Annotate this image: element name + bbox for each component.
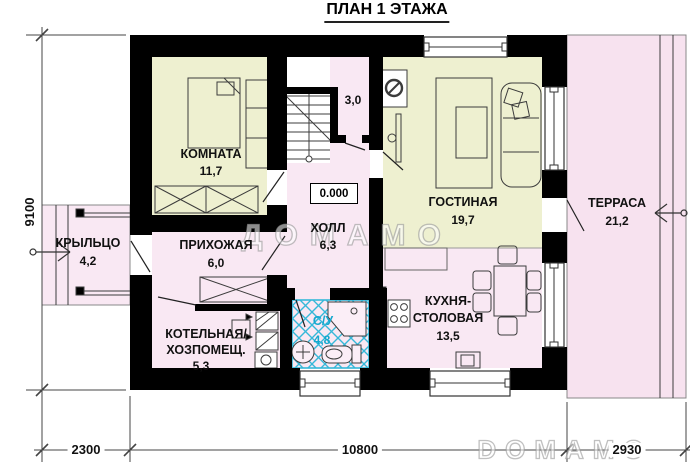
floor-plan-page: ДОМАМО DOMAMO ПЛАН 1 ЭТАЖА КОМНАТА 11,7 … xyxy=(0,0,690,470)
bedroom-area: 11,7 xyxy=(200,165,223,177)
stair-closet-area: 3,0 xyxy=(345,94,362,106)
terrace-area: 21,2 xyxy=(605,215,628,227)
boiler-room-label-2: ХОЗПОМЕЩ. xyxy=(166,344,245,357)
sofa xyxy=(501,83,541,187)
chimney-vent xyxy=(381,70,407,107)
stove xyxy=(388,300,410,327)
toilet xyxy=(322,345,361,363)
terrace-label: ТЕРРАСА xyxy=(588,197,646,210)
window-living-right xyxy=(545,87,564,170)
window-kitchen-right xyxy=(545,263,564,347)
entry-hall-area: 6,0 xyxy=(208,257,225,269)
door-main-entrance xyxy=(131,241,150,272)
window-kitchen-bottom xyxy=(430,371,510,396)
entry-hall-label: ПРИХОЖАЯ xyxy=(179,239,252,252)
hall-area: 6,3 xyxy=(320,239,337,251)
bedroom-label: КОМНАТА xyxy=(180,148,241,161)
bed xyxy=(188,78,240,148)
dim-bottom-porch: 2300 xyxy=(68,443,105,457)
living-room-label: ГОСТИНАЯ xyxy=(428,196,497,209)
dim-bottom-terrace: 2930 xyxy=(609,443,646,457)
porch-label: КРЫЛЬЦО xyxy=(56,237,121,250)
window-living-top xyxy=(424,37,507,57)
elevation-mark: 0.000 xyxy=(310,183,358,204)
porch-area: 4,2 xyxy=(80,255,97,267)
kitchen-label-2: СТОЛОВАЯ xyxy=(413,312,483,325)
window-bathroom-bottom xyxy=(300,371,360,396)
boiler-room-area: 5,3 xyxy=(193,360,210,372)
bathroom-label: С/У xyxy=(313,315,333,328)
bathroom-area: 4,8 xyxy=(314,334,331,346)
dim-bottom-house: 10800 xyxy=(338,443,382,457)
dim-left-total: 9100 xyxy=(23,194,37,231)
hall-label: ХОЛЛ xyxy=(311,222,346,235)
living-room-area: 19,7 xyxy=(451,214,474,226)
boiler-room-label-1: КОТЕЛЬНАЯ/ xyxy=(165,328,247,341)
kitchen-area: 13,5 xyxy=(436,330,459,342)
kitchen-label-1: КУХНЯ- xyxy=(425,295,471,308)
page-title: ПЛАН 1 ЭТАЖА xyxy=(324,1,449,23)
coffee-table xyxy=(456,107,487,158)
washbasin xyxy=(292,341,314,363)
washing-machine xyxy=(255,352,277,368)
